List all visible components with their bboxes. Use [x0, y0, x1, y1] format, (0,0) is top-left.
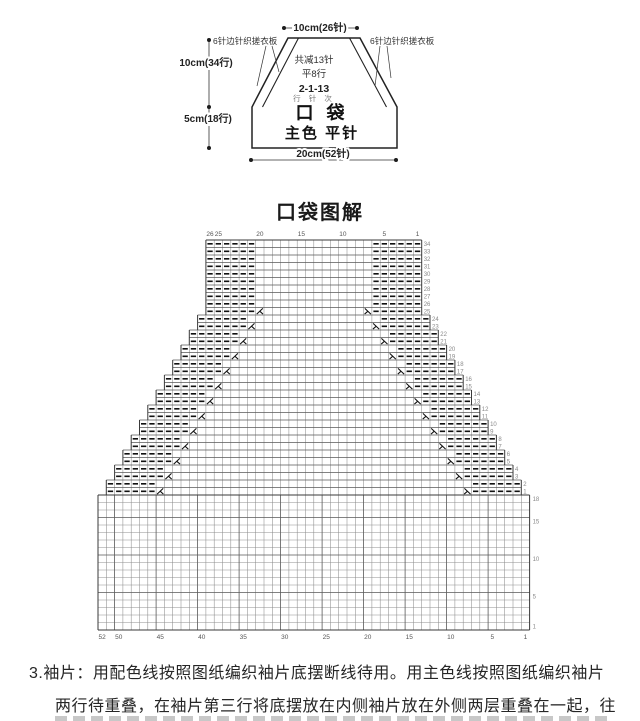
bottom-col-label: 35	[240, 634, 248, 641]
upper-row-label: 15	[465, 385, 472, 391]
upper-row-label: 8	[498, 437, 502, 443]
bottom-width-label: 20cm(52针)	[296, 147, 349, 160]
upper-row-label: 14	[474, 392, 481, 398]
pocket-knitting-chart: 2625201510511234567891011121314151617181…	[0, 226, 640, 646]
bottom-col-label: 1	[524, 634, 528, 641]
upper-row-label: 20	[449, 347, 456, 353]
upper-row-label: 16	[465, 377, 472, 383]
upper-row-label: 12	[482, 407, 489, 413]
top-col-label: 5	[383, 231, 387, 238]
upper-row-label: 28	[424, 287, 431, 293]
upper-row-label: 6	[507, 452, 511, 458]
upper-row-label: 29	[424, 280, 431, 286]
upper-row-label: 31	[424, 265, 431, 271]
decrease-total: 共减13针	[294, 54, 334, 66]
upper-row-label: 27	[424, 295, 431, 301]
lower-row-label: 10	[533, 557, 540, 563]
piece-name: 口 袋	[295, 102, 348, 123]
upper-row-label: 34	[424, 242, 431, 248]
piece-stitch: 主色 平针	[285, 124, 359, 142]
bottom-col-label: 15	[406, 634, 414, 641]
upper-row-label: 11	[482, 415, 489, 421]
chart-title: 口袋图解	[0, 196, 640, 225]
bottom-col-label: 50	[115, 634, 123, 641]
clipped-text-line	[55, 716, 612, 721]
border-note-right: 6针边针织搓衣板	[370, 36, 435, 46]
lower-row-label: 5	[533, 595, 537, 601]
upper-row-label: 26	[424, 302, 431, 308]
bottom-col-label: 10	[447, 634, 455, 641]
top-col-label: 26	[206, 231, 214, 238]
upper-row-label: 21	[440, 340, 447, 346]
upper-row-label: 18	[457, 362, 464, 368]
upper-row-label: 25	[424, 310, 431, 316]
border-band-right	[350, 38, 387, 107]
top-width-label: 10cm(26针)	[293, 21, 346, 34]
top-col-label: 20	[256, 231, 264, 238]
bottom-col-label: 20	[364, 634, 372, 641]
upper-row-label: 17	[457, 370, 464, 376]
bottom-col-label: 30	[281, 634, 289, 641]
upper-row-label: 30	[424, 272, 431, 278]
upper-row-label: 23	[432, 325, 439, 331]
bottom-col-label: 40	[198, 634, 206, 641]
lower-row-label: 15	[533, 520, 540, 526]
upper-row-label: 32	[424, 257, 431, 263]
pattern-page: 10cm(26针) 10cm(34行) 5cm(18行) 20cm(52针) 6…	[0, 0, 640, 721]
upper-row-label: 22	[440, 332, 447, 338]
top-col-label: 25	[215, 231, 223, 238]
top-col-label: 15	[298, 231, 306, 238]
bottom-col-label: 45	[157, 634, 165, 641]
lower-row-label: 18	[533, 497, 540, 503]
upper-row-label: 13	[474, 400, 481, 406]
decrease-legend: 行 针 次	[293, 93, 335, 103]
upper-row-label: 19	[449, 355, 456, 361]
top-col-label: 1	[416, 231, 420, 238]
bottom-col-label: 5	[490, 634, 494, 641]
pocket-schematic: 10cm(26针) 10cm(34行) 5cm(18行) 20cm(52针) 6…	[0, 0, 640, 190]
upper-row-label: 10	[490, 422, 497, 428]
lower-row-label: 1	[533, 625, 537, 631]
instruction-line-1: 3.袖片：用配色线按照图纸编织袖片底摆断线待用。用主色线按照图纸编织袖片	[0, 657, 640, 690]
instructions: 3.袖片：用配色线按照图纸编织袖片底摆断线待用。用主色线按照图纸编织袖片 两行待…	[0, 657, 640, 721]
leader-lines-left	[257, 46, 279, 86]
upper-row-label: 2	[523, 482, 527, 488]
border-note-left: 6针边针织搓衣板	[213, 36, 278, 46]
upper-row-label: 33	[424, 250, 431, 256]
upper-row-label: 4	[515, 467, 519, 473]
bottom-col-label: 25	[323, 634, 331, 641]
bottom-col-label: 52	[99, 634, 107, 641]
upper-row-label: 24	[432, 317, 439, 323]
side-upper-label: 10cm(34行)	[179, 56, 232, 69]
top-col-label: 10	[339, 231, 347, 238]
side-lower-label: 5cm(18行)	[184, 112, 232, 125]
plain-rows-note: 平8行	[302, 68, 327, 80]
